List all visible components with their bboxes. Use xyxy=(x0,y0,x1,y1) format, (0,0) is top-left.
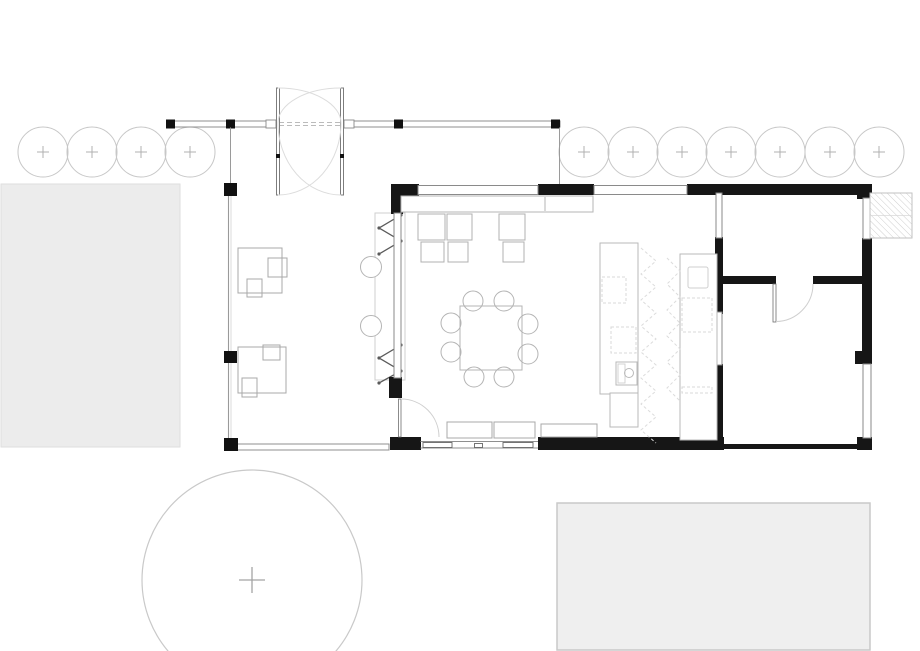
neighbor-building-left xyxy=(1,184,180,447)
sliding-door-panel xyxy=(423,443,452,448)
zigzag-dot xyxy=(377,226,380,229)
planter xyxy=(361,257,382,278)
sideboard xyxy=(494,422,535,438)
fence-post xyxy=(394,120,403,129)
floor-plan-canvas xyxy=(0,0,920,651)
wall-segment xyxy=(723,444,862,449)
wall-segment xyxy=(687,184,859,195)
wall-segment xyxy=(715,276,776,284)
north-window-bench xyxy=(401,196,593,212)
fence-post xyxy=(551,120,560,129)
gate-hinge xyxy=(340,154,344,158)
fence-post xyxy=(166,120,175,129)
wall-segment xyxy=(390,437,421,450)
kitchen-counter xyxy=(680,254,717,440)
kitchen-island xyxy=(610,393,638,427)
sliding-door-handle xyxy=(475,444,483,448)
gate-hinge xyxy=(276,154,280,158)
planter xyxy=(361,316,382,337)
zigzag-dot xyxy=(377,252,380,255)
south-sideboards xyxy=(447,422,597,438)
fence-rail xyxy=(170,121,276,127)
wall-segment xyxy=(389,377,402,398)
gate-leaf xyxy=(341,88,344,195)
neighbor-building-left xyxy=(1,184,180,447)
gate-jamb xyxy=(266,120,276,128)
deck-post xyxy=(224,183,237,196)
wall-segment xyxy=(538,184,594,195)
zigzag-dot xyxy=(377,381,380,384)
fence-post xyxy=(226,120,235,129)
window xyxy=(418,186,538,195)
entry-door-leaf xyxy=(399,399,402,437)
bedroom-door-leaf xyxy=(773,284,776,322)
sideboard xyxy=(541,424,597,437)
neighbor-building-bottom-right xyxy=(557,503,870,650)
gate-jamb xyxy=(344,120,354,128)
window xyxy=(863,364,871,438)
sideboard xyxy=(447,422,492,438)
wall-segment xyxy=(862,238,872,352)
window xyxy=(863,198,870,239)
zigzag-dot xyxy=(377,356,380,359)
neighbor-building-bottom-right xyxy=(557,503,870,650)
deck-step xyxy=(236,444,389,450)
entry-mat xyxy=(870,193,912,238)
window xyxy=(594,186,687,195)
window xyxy=(394,213,401,378)
wall-segment xyxy=(813,276,862,284)
fence-rail xyxy=(343,121,560,127)
gate-leaf xyxy=(277,88,280,195)
deck-post xyxy=(224,351,237,363)
window xyxy=(716,193,722,238)
wall-segment xyxy=(855,351,872,364)
deck-post xyxy=(224,438,238,451)
sliding-door-panel xyxy=(503,443,533,448)
window-bench xyxy=(401,196,593,212)
floor-plan-page xyxy=(0,0,920,651)
